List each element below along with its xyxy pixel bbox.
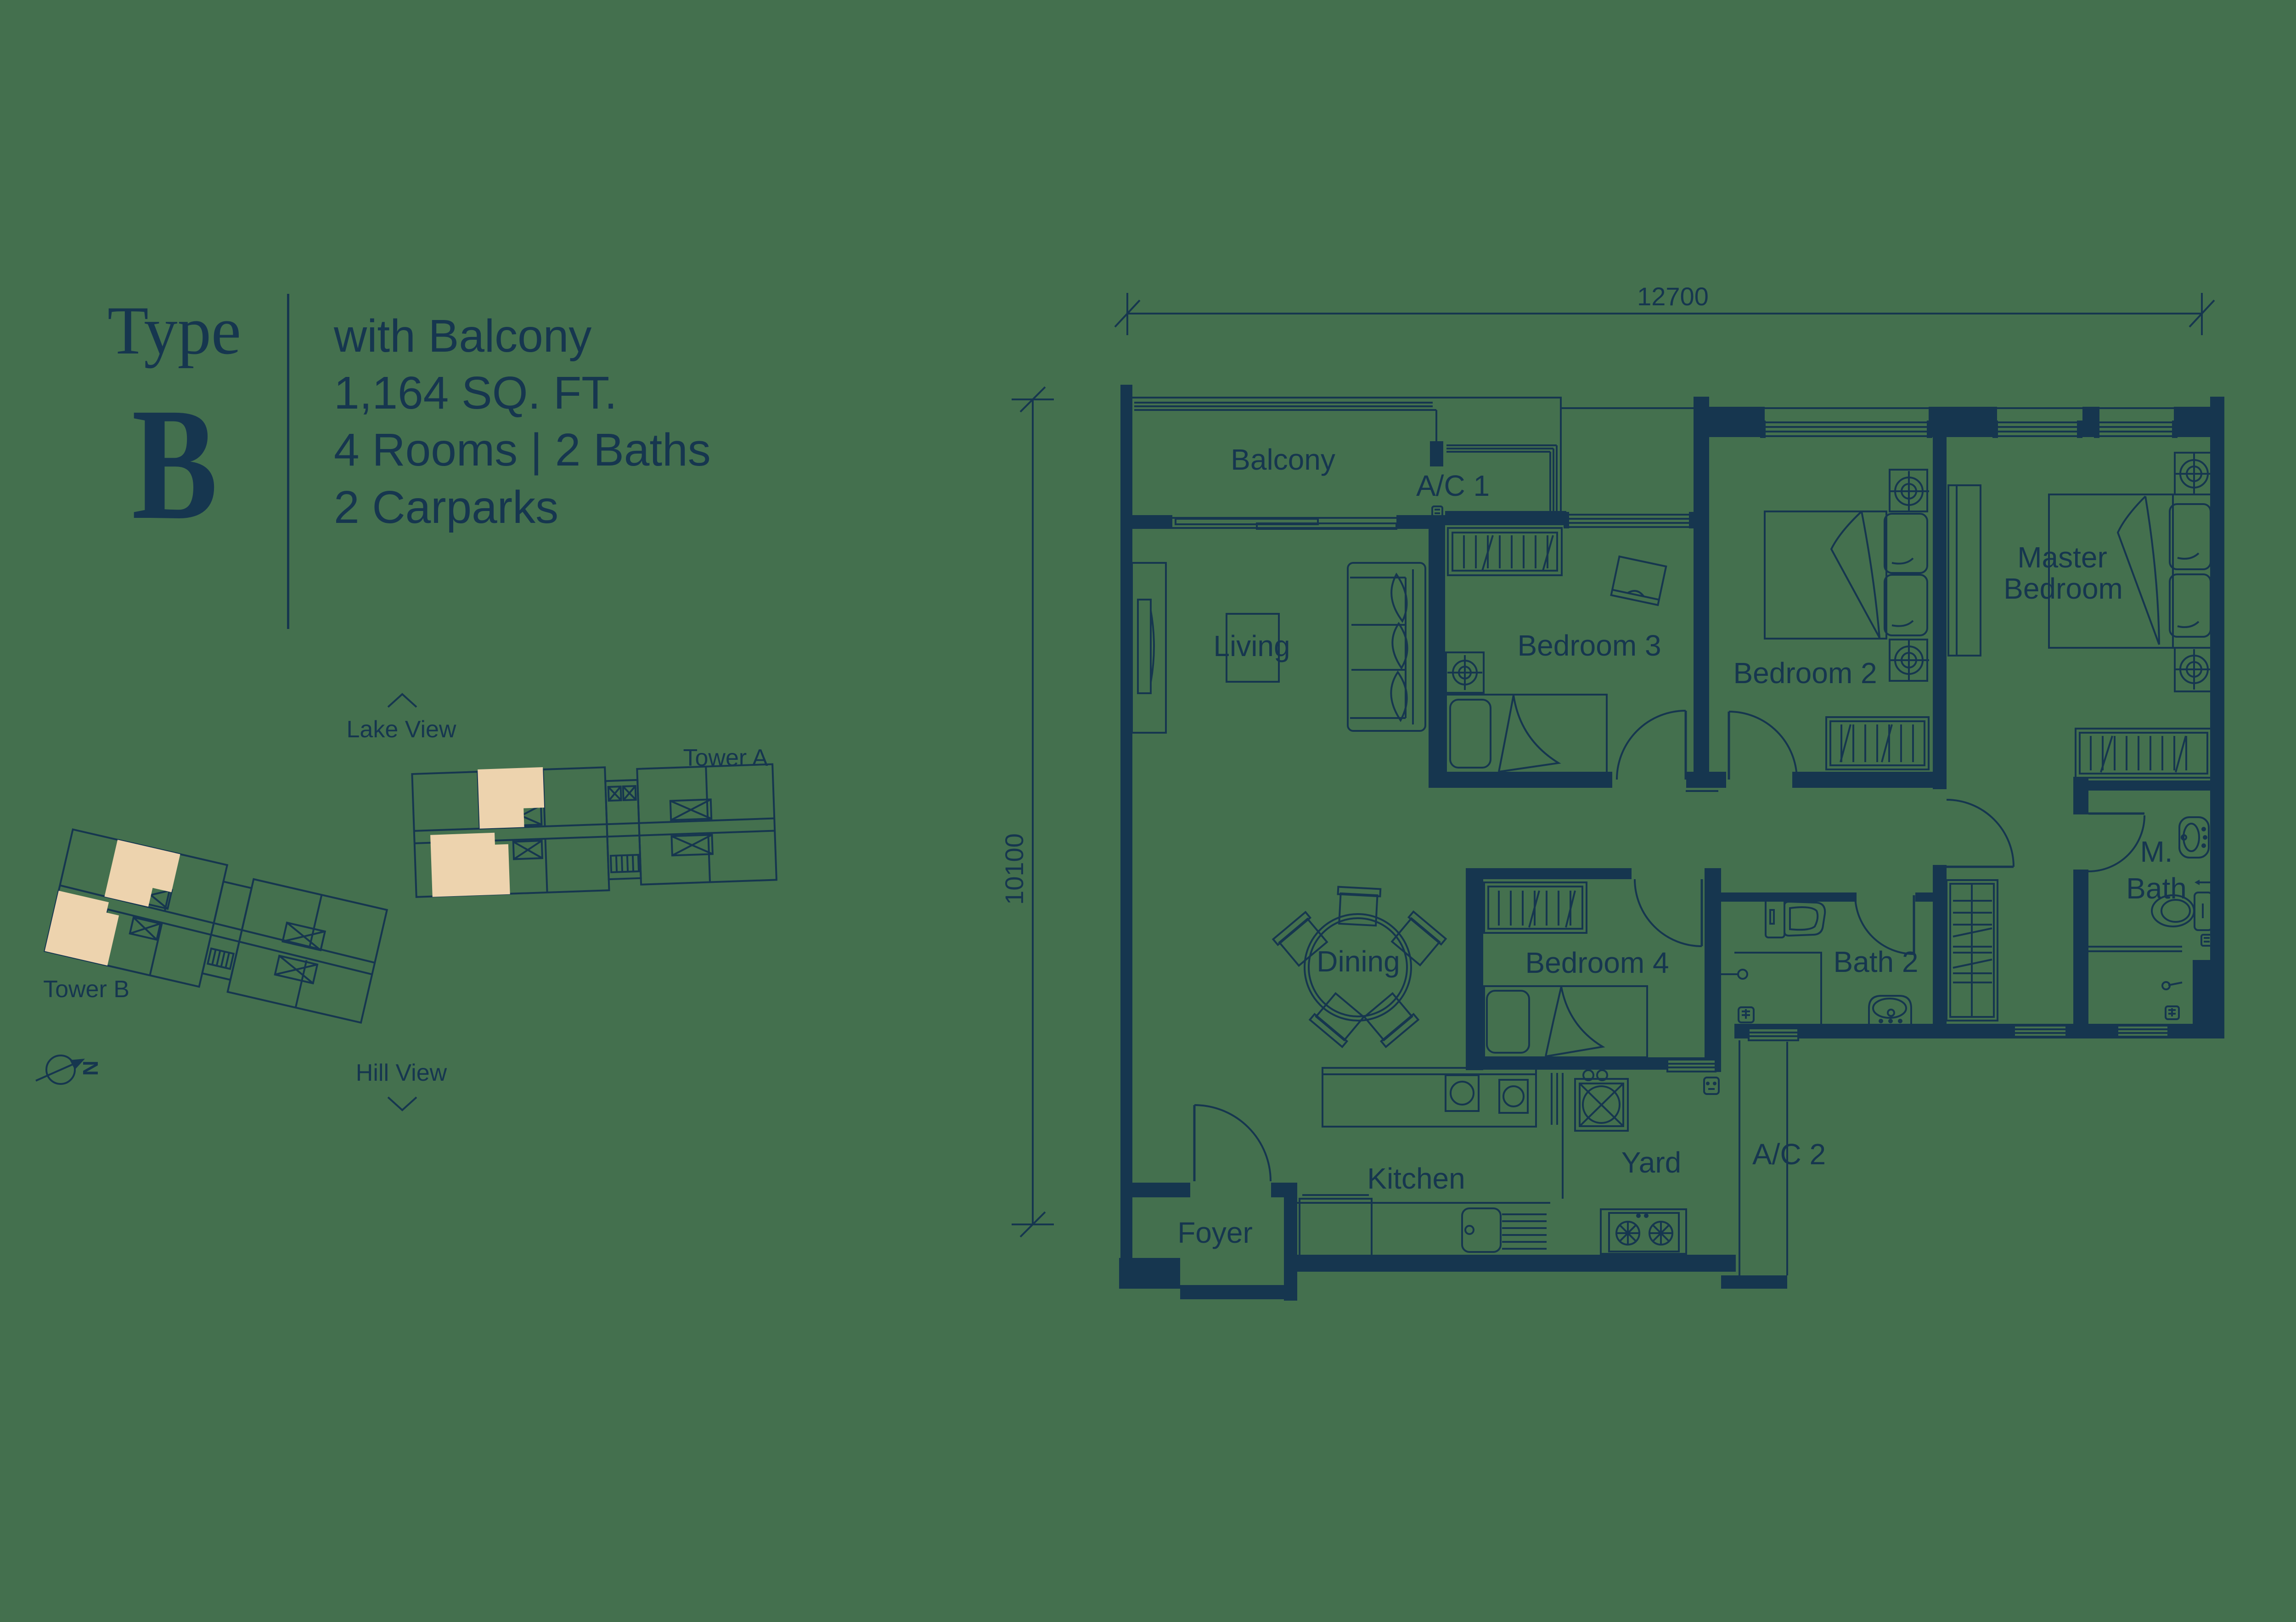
- svg-text:10100: 10100: [1000, 833, 1029, 905]
- svg-text:A/C 1: A/C 1: [1416, 469, 1490, 502]
- svg-text:Bedroom 3: Bedroom 3: [1517, 629, 1661, 662]
- svg-text:Bath: Bath: [2126, 872, 2187, 905]
- svg-text:Tower B: Tower B: [43, 976, 129, 1003]
- svg-text:Bedroom: Bedroom: [2003, 572, 2123, 605]
- svg-text:with Balcony: with Balcony: [333, 310, 591, 362]
- svg-text:A/C 2: A/C 2: [1752, 1138, 1826, 1171]
- svg-text:M.: M.: [2140, 835, 2172, 868]
- svg-text:Yard: Yard: [1621, 1146, 1681, 1179]
- svg-text:Living: Living: [1213, 629, 1290, 662]
- svg-text:Bath 2: Bath 2: [1833, 945, 1918, 978]
- svg-text:Kitchen: Kitchen: [1367, 1162, 1465, 1195]
- svg-text:4 Rooms | 2 Baths: 4 Rooms | 2 Baths: [334, 424, 711, 476]
- svg-text:N: N: [79, 1061, 102, 1076]
- svg-text:Bedroom 2: Bedroom 2: [1733, 657, 1877, 690]
- svg-text:B: B: [132, 375, 218, 553]
- svg-text:Foyer: Foyer: [1177, 1216, 1253, 1249]
- svg-text:Hill View: Hill View: [356, 1060, 447, 1086]
- svg-text:Type: Type: [107, 292, 241, 369]
- svg-text:Balcony: Balcony: [1231, 443, 1335, 476]
- svg-text:1,164 SQ. FT.: 1,164 SQ. FT.: [334, 367, 617, 419]
- svg-text:Lake View: Lake View: [347, 716, 456, 743]
- svg-text:Master: Master: [2017, 541, 2107, 574]
- svg-text:2 Carparks: 2 Carparks: [334, 482, 558, 533]
- svg-text:Dining: Dining: [1317, 945, 1400, 978]
- svg-text:Bedroom 4: Bedroom 4: [1525, 946, 1669, 979]
- svg-text:12700: 12700: [1637, 282, 1709, 311]
